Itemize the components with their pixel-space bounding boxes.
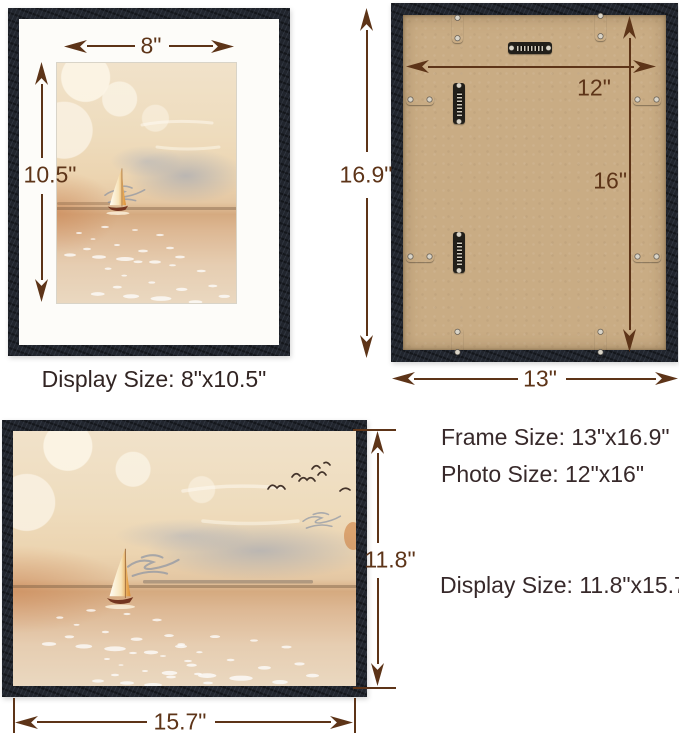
retainer-clip-icon — [595, 327, 606, 357]
mat-opening — [57, 63, 236, 303]
dimension-label-front-width: 8" — [141, 33, 162, 60]
retainer-clip-icon — [406, 94, 434, 105]
extension-line — [353, 429, 396, 431]
dimension-line — [414, 378, 518, 380]
dimension-label-display-height: 11.8" — [364, 547, 415, 574]
arrowhead-down-icon — [371, 663, 384, 686]
dimension-line — [366, 198, 368, 336]
dimension-line — [215, 721, 331, 723]
seascape-art-landscape — [13, 431, 356, 686]
dimension-label-front-height: 10.5" — [24, 162, 77, 189]
dimension-label-photo-height: 16" — [593, 168, 627, 195]
sawtooth-hanger-icon — [453, 232, 465, 273]
dimension-line — [169, 45, 213, 47]
spec-photo-size: Photo Size: 12"x16" — [441, 461, 644, 488]
dimension-label-photo-width: 12" — [577, 75, 611, 102]
dimension-label-frame-height: 16.9" — [340, 162, 393, 189]
dimension-line — [377, 453, 379, 543]
retainer-clip-icon — [633, 251, 661, 262]
seascape-art-portrait — [57, 63, 236, 303]
dimension-line — [377, 578, 379, 664]
retainer-clip-icon — [633, 94, 661, 105]
back-frame — [391, 3, 678, 362]
arrowhead-up-icon — [360, 8, 373, 31]
sawtooth-hanger-icon — [453, 83, 465, 124]
dimension-line — [41, 194, 43, 280]
sawtooth-hanger-icon — [508, 42, 552, 54]
arrowhead-right-icon — [330, 716, 353, 729]
extension-line — [353, 687, 396, 689]
extension-line — [13, 698, 15, 733]
painting-opening — [13, 431, 356, 686]
dimension-line — [428, 66, 634, 68]
dimension-line — [566, 378, 656, 380]
product-dimension-diagram: 8" 10.5" Display Size: 8"x10.5" 16.9" 12… — [0, 0, 679, 735]
front-frame-landscape — [2, 420, 367, 697]
retainer-clip-icon — [452, 327, 463, 357]
dimension-line — [37, 721, 147, 723]
dimension-label-display-width: 15.7" — [154, 709, 207, 735]
seascape-painting-landscape — [13, 431, 356, 686]
extension-line — [354, 698, 356, 733]
arrowhead-down-icon — [360, 335, 373, 358]
retainer-clip-icon — [595, 11, 606, 41]
arrowhead-up-icon — [371, 431, 384, 454]
seascape-painting-portrait — [57, 63, 236, 303]
dimension-line — [366, 30, 368, 152]
retainer-clip-icon — [452, 13, 463, 43]
spec-display-size: Display Size: 11.8"x15.7" — [440, 572, 679, 599]
dimension-line — [629, 38, 631, 330]
dimension-line — [87, 45, 135, 47]
arrowhead-right-icon — [655, 372, 678, 385]
arrowhead-left-icon — [392, 372, 415, 385]
spec-frame-size: Frame Size: 13"x16.9" — [441, 424, 670, 451]
dimension-line — [41, 84, 43, 158]
display-size-caption: Display Size: 8"x10.5" — [42, 366, 267, 393]
retainer-clip-icon — [406, 251, 434, 262]
arrowhead-left-icon — [15, 716, 38, 729]
dimension-label-frame-width: 13" — [523, 366, 557, 393]
